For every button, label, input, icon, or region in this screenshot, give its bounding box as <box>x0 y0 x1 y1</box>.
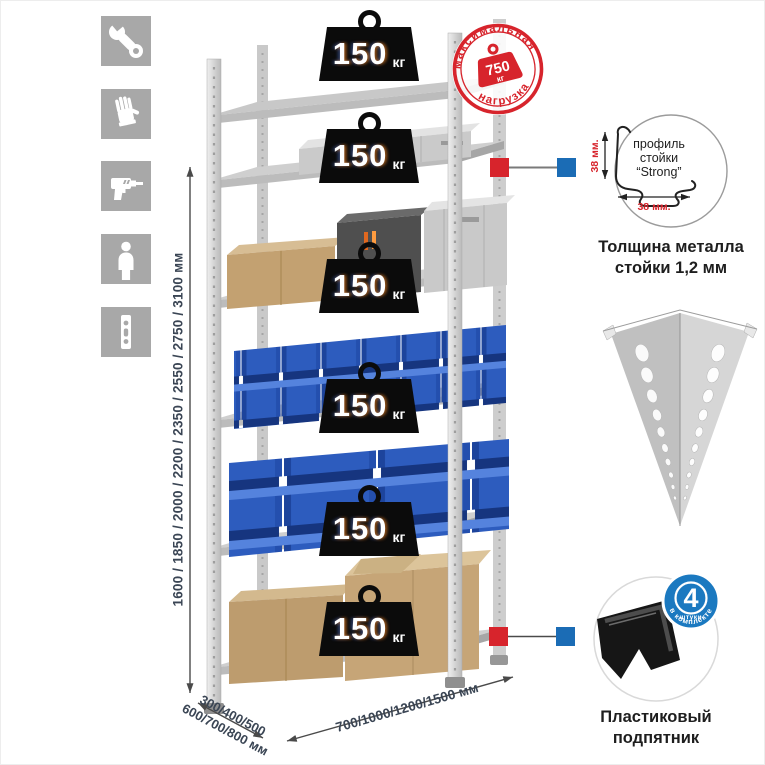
profile-label-1: профиль <box>633 137 685 151</box>
drill-icon <box>101 161 151 211</box>
weight-badge-shelf-4: 150кг <box>319 362 419 433</box>
profile-dim-horizontal: 38 мм. <box>637 201 670 213</box>
weight-badge-shelf-6: 150кг <box>319 585 419 656</box>
aluminium-case-large <box>424 195 515 293</box>
included-badge: 4 штуки в комплекте <box>663 573 719 629</box>
load-value: 150 <box>333 138 388 174</box>
foot-caption-line-2: подпятник <box>566 728 746 749</box>
upright-profile-icon <box>101 307 151 357</box>
product-infographic: 750 кг максимальная нагрузка 38 мм. 38 м… <box>0 0 765 765</box>
gloves-icon <box>101 89 151 139</box>
profile-detail: 38 мм. 38 мм. профиль стойки “Strong” <box>589 115 727 227</box>
load-value: 150 <box>333 268 388 304</box>
load-unit: кг <box>392 156 405 172</box>
load-value: 150 <box>333 36 388 72</box>
rack-foot <box>490 655 508 665</box>
weight-badge-shelf-2: 150кг <box>319 112 419 183</box>
foot-caption-line-1: Пластиковый <box>566 707 746 728</box>
load-unit: кг <box>392 629 405 645</box>
load-value: 150 <box>333 388 388 424</box>
person-icon <box>101 234 151 284</box>
load-unit: кг <box>392 54 405 70</box>
badge-count: 4 <box>683 583 698 613</box>
marker-blue-top <box>557 158 576 177</box>
weight-badge-shelf-5: 150кг <box>319 485 419 556</box>
profile-caption-line-1: Толщина металла <box>581 237 761 258</box>
wrench-icon <box>101 16 151 66</box>
load-value: 150 <box>333 511 388 547</box>
load-unit: кг <box>392 406 405 422</box>
foot-caption: Пластиковый подпятник <box>566 707 746 750</box>
load-unit: кг <box>392 286 405 302</box>
marker-red-top <box>490 158 509 177</box>
weight-badge-shelf-3: 150кг <box>319 242 419 313</box>
marker-red-bottom <box>489 627 508 646</box>
profile-label-2: стойки <box>640 151 678 165</box>
marker-blue-bottom <box>556 627 575 646</box>
profile-caption: Толщина металла стойки 1,2 мм <box>581 237 761 280</box>
profile-dim-vertical: 38 мм. <box>589 139 601 172</box>
weight-badge-shelf-1: 150кг <box>319 10 419 81</box>
foot-detail: 4 штуки в комплекте <box>594 573 719 701</box>
angle-post-image <box>603 310 757 526</box>
height-dimension-label: 1600 / 1850 / 2000 / 2200 / 2350 / 2550 … <box>171 150 188 710</box>
profile-caption-line-2: стойки 1,2 мм <box>581 258 761 279</box>
profile-label-3: “Strong” <box>636 165 681 179</box>
load-value: 150 <box>333 611 388 647</box>
load-unit: кг <box>392 529 405 545</box>
